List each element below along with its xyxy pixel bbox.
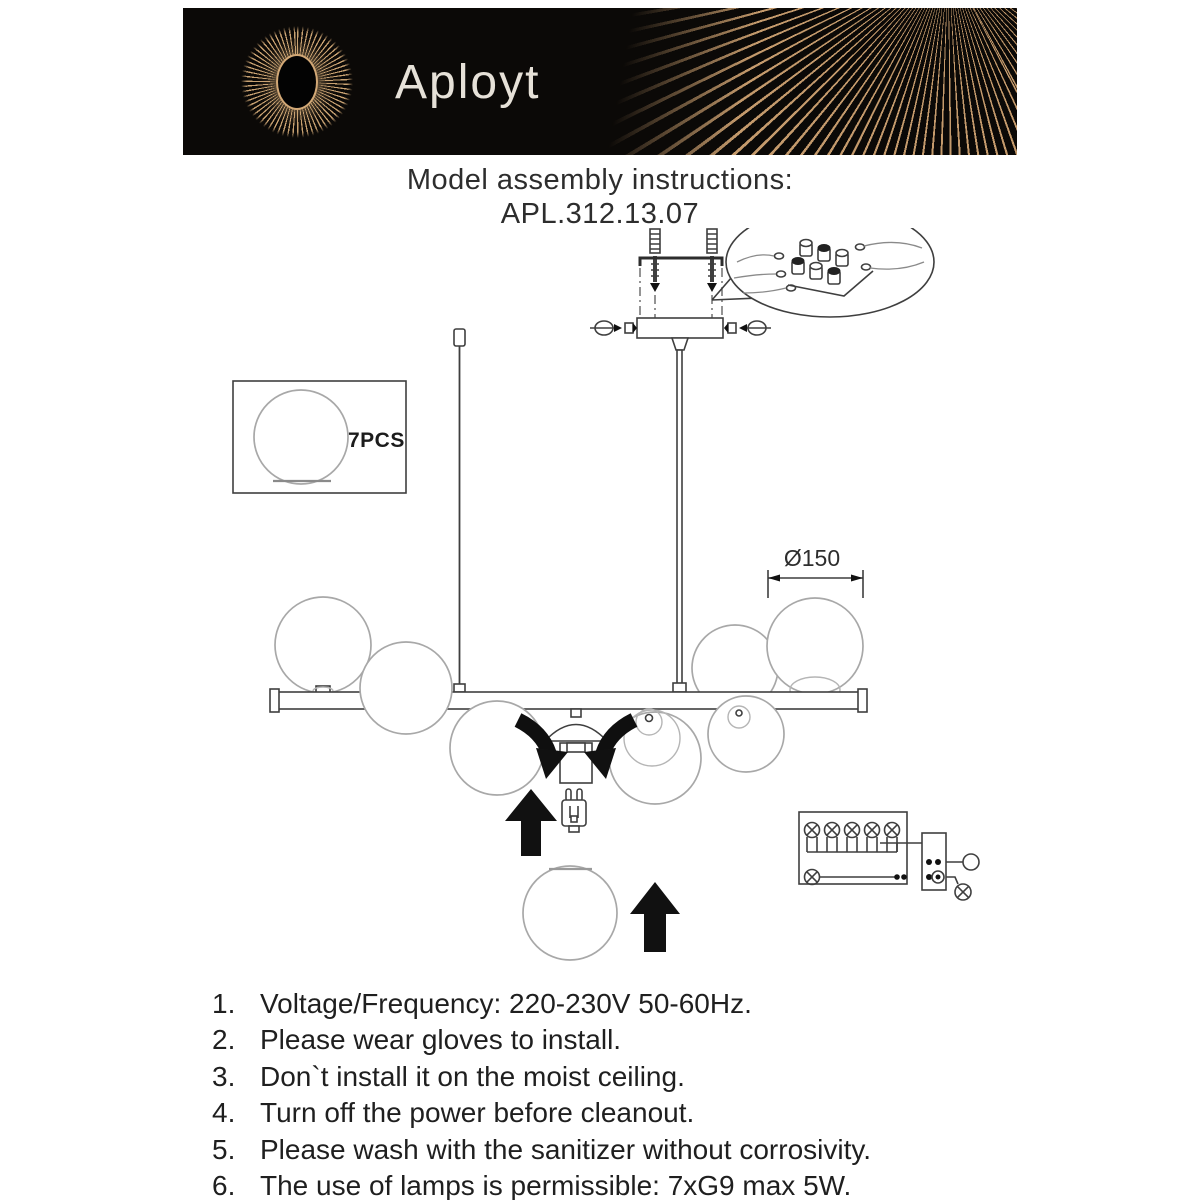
parts-count-label: 7PCS	[348, 429, 405, 452]
mounting-bracket-icon	[640, 258, 722, 318]
page-title: Model assembly instructions: APL.312.13.…	[0, 163, 1200, 231]
suspension-cable-icon	[454, 329, 465, 692]
brand-banner: Aployt	[183, 8, 1017, 155]
instruction-item: 6. The use of lamps is permissible: 7xG9…	[212, 1168, 871, 1200]
brand-name: Aployt	[395, 55, 540, 110]
shade-install-step	[523, 866, 680, 960]
instruction-item: 2. Please wear gloves to install.	[212, 1022, 871, 1058]
instruction-item: 5. Please wash with the sanitizer withou…	[212, 1132, 871, 1168]
instruction-list: 1. Voltage/Frequency: 220-230V 50-60Hz. …	[212, 986, 871, 1200]
diameter-label: Ø150	[784, 545, 840, 571]
ceiling-anchor-screws-icon	[650, 229, 717, 292]
diameter-dimension: Ø150	[768, 545, 863, 598]
terminal-connector-icon	[922, 833, 946, 890]
starburst-logo-icon	[237, 20, 357, 144]
gold-rays-decoration-icon	[587, 8, 1017, 155]
assembly-drawing: 7PCS Ø150	[0, 228, 1200, 988]
sphere-shade-icon	[254, 390, 348, 484]
instruction-item: 1. Voltage/Frequency: 220-230V 50-60Hz.	[212, 986, 871, 1022]
instruction-item: 3. Don`t install it on the moist ceiling…	[212, 1059, 871, 1095]
instruction-sheet: Aployt Model assembly instructions: APL.…	[0, 0, 1200, 1200]
terminal-block-callout	[712, 228, 934, 317]
model-number: APL.312.13.07	[0, 197, 1200, 231]
logo-oval-core-icon	[276, 54, 318, 110]
title-heading: Model assembly instructions:	[0, 163, 1200, 197]
up-arrow-bulb-icon	[505, 789, 557, 856]
g9-bulb-icon	[562, 789, 586, 832]
wiring-diagram	[799, 812, 979, 900]
instruction-item: 4. Turn off the power before cleanout.	[212, 1095, 871, 1131]
parts-count-box: 7PCS	[233, 381, 406, 493]
neutral-circle-icon	[963, 854, 979, 870]
up-arrow-shade-icon	[630, 882, 680, 952]
